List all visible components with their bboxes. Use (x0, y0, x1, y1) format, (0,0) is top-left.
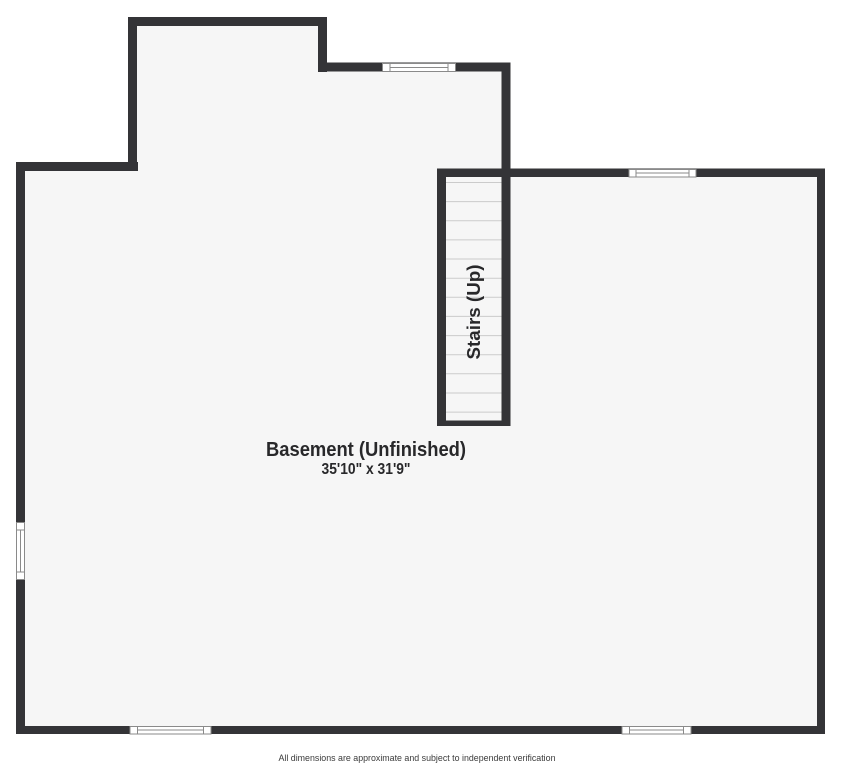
svg-text:All dimensions are approximate: All dimensions are approximate and subje… (279, 753, 556, 764)
svg-text:Basement (Unfinished): Basement (Unfinished) (266, 439, 466, 461)
svg-text:Stairs (Up): Stairs (Up) (464, 264, 484, 359)
svg-text:35'10" x 31'9": 35'10" x 31'9" (322, 461, 411, 478)
